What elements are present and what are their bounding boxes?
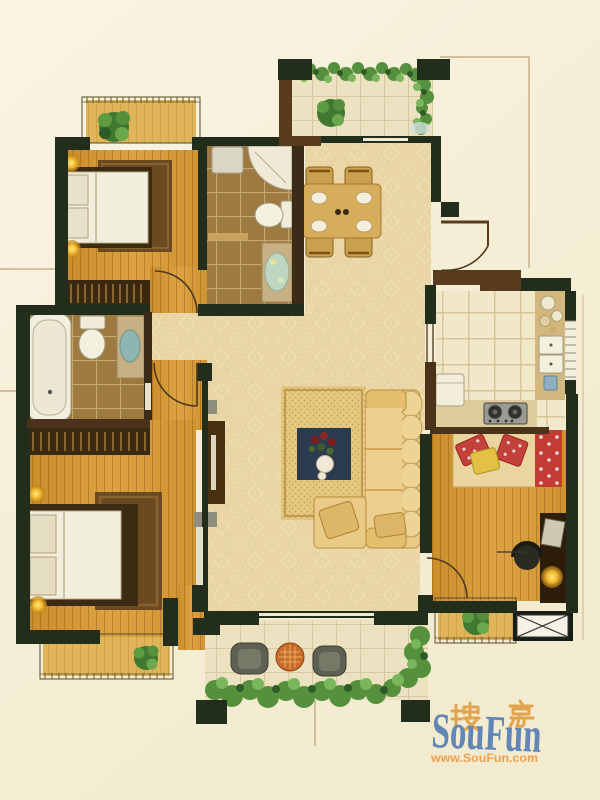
svg-text:www.SouFun.com: www.SouFun.com [430, 753, 538, 765]
